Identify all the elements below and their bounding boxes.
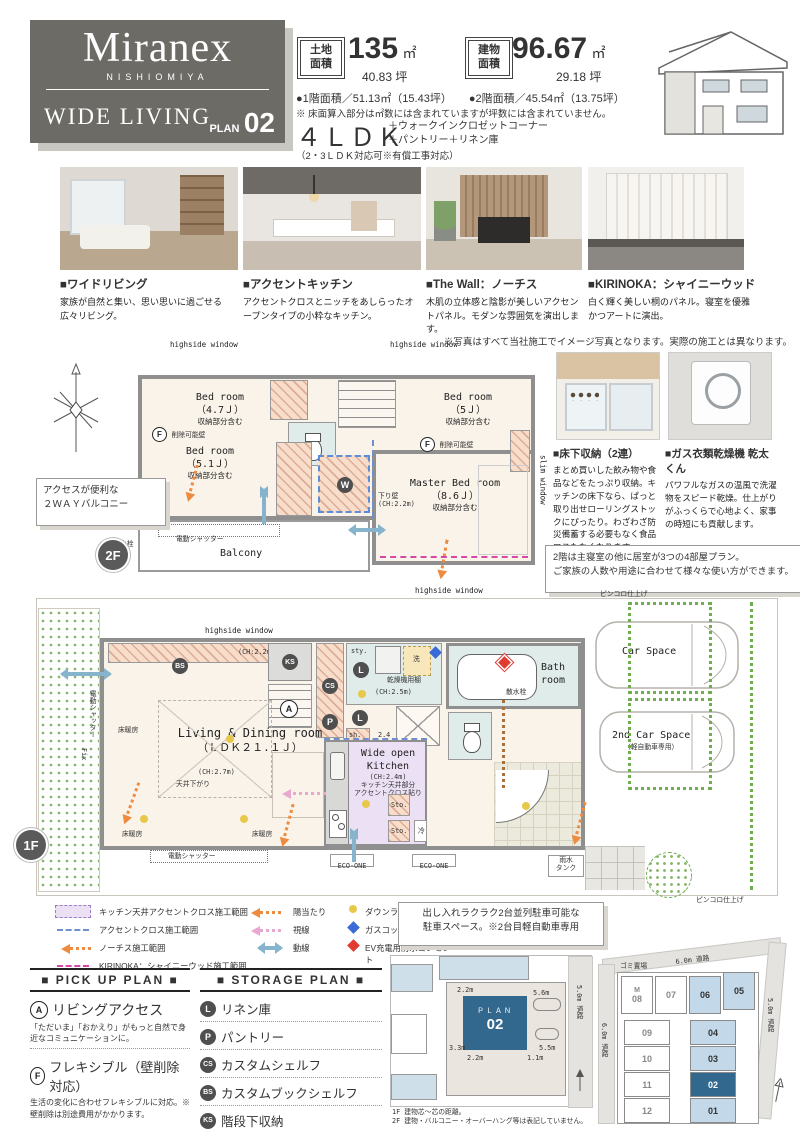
photo5-bottles: [569, 391, 599, 401]
lot-11: 11: [624, 1072, 670, 1097]
lot-map: 6.0m 道路 6.0m 道路 5.0m 道路 ゴミ置場 M 08 07 06 …: [598, 928, 798, 1128]
photo3-plant: [434, 201, 456, 241]
bedroom2-note: 収納部分含む: [408, 417, 528, 426]
bedroom2-label: Bed room （5Ｊ） 収納部分含む: [408, 392, 528, 426]
kirinoka-finish-line: [380, 556, 528, 558]
logo-divider: [46, 89, 269, 90]
storage-l-name: リネン庫: [221, 999, 271, 1018]
feature-2: ■ガス衣類乾燥機 乾太くん パワフルなガスの温風で洗濯物をスピード乾燥。仕上がり…: [665, 446, 777, 531]
master-bed-icon: [478, 465, 528, 555]
eco-one-2: ECO-ONE: [412, 854, 456, 867]
storage-l-badge: L: [200, 1001, 216, 1017]
stairs-2f: [338, 380, 396, 428]
land-area-value: 135 ㎡: [348, 32, 417, 66]
bedroom3-name: Bed room: [150, 446, 270, 459]
lotmap-road-top-label: 6.0m 道路: [675, 954, 710, 966]
bedroom1-label: Bed room （4.7Ｊ） 収納部分含む: [160, 392, 280, 426]
sight-arrow-1f: [286, 792, 326, 795]
flow-arrow-2f-2: [350, 528, 384, 532]
lot-02: 02: [690, 1072, 736, 1097]
floor1-area: ●1階面積／51.13㎡（15.43坪）: [296, 93, 452, 105]
site-note-2: 2F 建物・バルコニー・オーバーハング等は表記していません。: [392, 1117, 587, 1125]
storage-bs-badge: BS: [200, 1085, 216, 1101]
photo3-tv: [478, 217, 530, 243]
lotmap-road-right-label: 5.0m 道路: [766, 998, 774, 1032]
legend-notis-swatch: [65, 947, 91, 950]
storage-ks-name: 階段下収納: [221, 1111, 284, 1130]
lot-08-m: M: [634, 987, 640, 994]
sty-label: sty.: [351, 647, 367, 655]
layout-plus1: ＋ウォークインクロゼットコーナー: [388, 120, 548, 134]
floor2-area: ●2階面積／45.54㎡（13.75坪）: [469, 93, 625, 105]
fridge-label: 冷: [418, 827, 425, 835]
porch-steps: [585, 846, 645, 890]
kitchen-l1: Wide open: [352, 748, 424, 761]
dryer-shelf-label: 乾燥機用棚: [387, 676, 421, 684]
storage-bs-name: カスタムブックシェルフ: [221, 1083, 358, 1102]
storage-item-p: P パントリー: [200, 1027, 382, 1050]
fridge-box: 冷: [414, 820, 427, 842]
pickup-title: ■ PICK UP PLAN ■: [30, 968, 190, 992]
ch27-label: (CH:2.7m): [198, 768, 235, 776]
site-plan-word: ＰＬＡＮ: [463, 1006, 527, 1016]
kitchen-ch: (CH:2.4m): [352, 773, 424, 781]
storage-plan-section: ■ STORAGE PLAN ■ L リネン庫 P パントリー CS カスタムシ…: [200, 968, 382, 1132]
legend-accent-swatch: [57, 929, 89, 931]
removable-wall-2-label: 削除可能壁: [439, 441, 473, 449]
floor-badge-1f: 1F: [16, 830, 46, 860]
lot-07-no: 07: [666, 990, 676, 1000]
lot-12-no: 12: [642, 1106, 652, 1116]
dryer-door: [705, 373, 741, 409]
lot-06-no: 06: [700, 990, 710, 1000]
bedroom3-size: （5.1Ｊ）: [150, 459, 270, 472]
under-stairs-storage: KS: [268, 643, 312, 681]
site-north-arrow-icon: [573, 1069, 587, 1093]
brand-sub: NISHIOMIYA: [30, 72, 285, 82]
shutter-label-left: 電動シャッター: [88, 690, 96, 738]
toilet-room-1f: [448, 712, 492, 760]
site-plan: ＰＬＡＮ 02 2.2m 3.3m 2.2m 1.1m 5.6m 5.5m 5.…: [390, 955, 592, 1107]
caption-1: ■ワイドリビング 家族が自然と集い、思い思いに過ごせる広々リビング。: [60, 276, 238, 323]
building-value: 96.67: [512, 32, 587, 65]
pinkoro-top-label: ピンコロ仕上げ: [600, 590, 648, 598]
pickup-f-name: フレキシブル（壁削除対応）: [49, 1057, 190, 1095]
flyer-page: Miranex NISHIOMIYA WIDE LIVING PLAN 02 土…: [0, 0, 800, 1132]
feature-1-desc: まとめ買いした飲み物や食品などをたっぷり収納。キッチンの床下なら、ぱっと取り出せ…: [553, 464, 661, 554]
land-value: 135: [348, 32, 398, 65]
hanging-wall-l2: (CH:2.2m): [378, 500, 415, 508]
removable-wall-1: F 削除可能壁: [152, 424, 205, 442]
vanity-icon: [375, 646, 401, 674]
feature-1: ■床下収納（2連） まとめ買いした飲み物や食品などをたっぷり収納。キッチンの床下…: [553, 446, 661, 554]
building-unit: ㎡: [592, 45, 606, 61]
bedroom3-label: Bed room （5.1Ｊ） 収納部分含む: [150, 446, 270, 480]
washer-label: 洗: [413, 655, 420, 663]
downlight-1: [226, 735, 234, 743]
photo5-box2: [609, 383, 653, 431]
wic-2f: W: [318, 455, 370, 513]
brand-logo: Miranex NISHIOMIYA WIDE LIVING PLAN 02: [30, 20, 285, 143]
plan2f-note-l1: 2階は主寝室の他に居室が3つの4部屋プラン。: [553, 551, 800, 565]
wic-badge: W: [337, 477, 353, 493]
fence-dotted-line: [502, 700, 505, 788]
lot-09-no: 09: [642, 1028, 652, 1038]
caption-4: ■KIRINOKA：シャイニーウッド 白く輝く美しい桐のパネル。寝室を優雅かつア…: [588, 276, 758, 323]
lot-10-no: 10: [642, 1054, 652, 1064]
legend-kitchen-swatch: [55, 905, 91, 918]
site-dim-55: 5.5m: [539, 1044, 555, 1052]
site-dim-56: 5.6m: [533, 989, 549, 997]
pickup-item-f: F フレキシブル（壁削除対応）: [30, 1057, 190, 1095]
plan-word: PLAN: [209, 123, 239, 135]
pickup-plan-section: ■ PICK UP PLAN ■ A リビングアクセス 「ただいま」「おかえり」…: [30, 968, 190, 1120]
photo-note: ※写真はすべて当社施工でイメージ写真となります。実際の施工とは異なります。: [444, 334, 792, 348]
site-plan02-block: ＰＬＡＮ 02: [463, 996, 527, 1050]
parking-note-l1: 出し入れラクラク2台並列駐車可能な: [405, 907, 597, 921]
site-car2-icon: [535, 1028, 559, 1040]
photo4-bed-edge: [588, 239, 744, 247]
pickup-f-desc: 生活の変化に合わせフレキシブルに対応。※壁削除は別途費用がかかります。: [30, 1097, 190, 1119]
eco-one-1-label: ECO-ONE: [338, 862, 367, 870]
legend-flow-label: 動線: [293, 942, 310, 954]
plan-label: PLAN 02: [209, 107, 275, 139]
storage-cs-name: カスタムシェルフ: [221, 1055, 321, 1074]
floor-areas: ●1階面積／51.13㎡（15.43坪） ●2階面積／45.54㎡（13.75坪…: [296, 90, 625, 106]
rain-tank-l1: 雨水: [549, 856, 583, 864]
land-unit: ㎡: [403, 45, 417, 61]
floor-badge-2f: 2F: [98, 540, 128, 570]
ch25-label: (CH:2.5m): [375, 688, 412, 696]
legend-downlight-swatch: [349, 905, 357, 913]
caption-2-desc: アクセントクロスとニッチをあしらったオープンタイプの小粋なキッチン。: [243, 296, 421, 323]
caption-2: ■アクセントキッチン アクセントクロスとニッチをあしらったオープンタイプの小粋な…: [243, 276, 421, 323]
bedroom2-name: Bed room: [408, 392, 528, 405]
pinkoro-bottom-label: ピンコロ仕上げ: [696, 896, 744, 904]
lot-06: 06: [689, 976, 721, 1014]
land-tsubo: 40.83 坪: [362, 68, 407, 85]
site-neighbor-1: [391, 964, 433, 992]
caption-3: ■The Wall：ノーチス 木肌の立体感と陰影が美しいアクセントパネル。モダン…: [426, 276, 582, 337]
downlight-3: [240, 815, 248, 823]
linen-badge-1: L: [353, 662, 369, 678]
toilet-tank-icon: [305, 433, 321, 442]
lot-05-no: 05: [734, 986, 744, 996]
building-area-label: 建物面積: [468, 40, 510, 76]
balcony-note-l1: アクセスが便利な: [43, 484, 159, 498]
hanging-wall-l1: 下り壁: [378, 492, 415, 500]
site-neighbor-3: [391, 1074, 437, 1100]
floor-heat-1: 床暖房: [118, 726, 138, 734]
floor-heat-2: 床暖房: [122, 830, 142, 838]
pinkoro-frame-1: [628, 602, 712, 694]
caption-4-title: ■KIRINOKA：シャイニーウッド: [588, 276, 758, 292]
storage-cs-badge: CS: [200, 1057, 216, 1073]
site-plan-no: 02: [463, 1016, 527, 1033]
lot-05: 05: [723, 972, 755, 1010]
kitchen-label: Wide open Kitchen (CH:2.4m) キッチン天井部分 アクセ…: [352, 748, 424, 797]
lotmap-road-left-label: 6.0m 道路: [600, 1023, 608, 1057]
floor-heat-3: 床暖房: [252, 830, 272, 838]
kitchen-storage-2: Sto.: [388, 820, 410, 842]
shutter-label-1f: 電動シャッター: [168, 852, 216, 860]
lot-04-no: 04: [708, 1028, 718, 1038]
downlight-kitchen: [362, 800, 370, 808]
slim-window-label: slim window: [538, 455, 547, 505]
kitchen-l2: Kitchen: [352, 761, 424, 774]
site-neighbor-2: [391, 1014, 427, 1054]
rain-tank-l2: タンク: [549, 864, 583, 872]
accent-cloth-line-kitchen: [324, 738, 427, 740]
legend-accent-label: アクセントクロス施工範囲: [99, 924, 198, 936]
lot-09: 09: [624, 1020, 670, 1045]
photo2-pendant-cord: [313, 175, 315, 195]
layout-plus: ＋ウォークインクロゼットコーナー ＋パントリー＋リネン庫: [388, 120, 548, 147]
series-name: WIDE LIVING: [44, 104, 211, 130]
caption-1-desc: 家族が自然と集い、思い思いに過ごせる広々リビング。: [60, 296, 238, 323]
photo4-panel: [606, 173, 728, 241]
feature-2-title: ■ガス衣類乾燥機 乾太くん: [665, 446, 777, 476]
caption-2-title: ■アクセントキッチン: [243, 276, 421, 292]
feature-2-desc: パワフルなガスの温風で洗濯物をスピード乾燥。仕上がりがふっくらで心地よく、家事の…: [665, 479, 777, 531]
legend-notis-label: ノーチス施工範囲: [99, 942, 165, 954]
tree-icon: [646, 852, 692, 898]
caption-3-desc: 木肌の立体感と陰影が美しいアクセントパネル。モダンな雰囲気を演出します。: [426, 296, 582, 337]
hw-label-2f-bottom: highside window: [415, 586, 483, 595]
closet-2f-bed3: [276, 442, 312, 516]
gas-cock-icon: [429, 646, 442, 659]
hw-label-2f-right: highside window: [390, 340, 458, 349]
photo1-sofa: [80, 225, 150, 249]
hw-label-2f-left: highside window: [170, 340, 238, 349]
lotmap-trash-label: ゴミ置場: [620, 962, 647, 970]
hw-label-1f: highside window: [205, 626, 273, 635]
lot-10: 10: [624, 1046, 670, 1071]
lot-02-no: 02: [708, 1080, 718, 1090]
photo-the-wall: [426, 167, 582, 270]
pinkoro-frame-2: [628, 698, 712, 790]
balcony-label: Balcony: [220, 548, 262, 561]
brand-name: Miranex: [30, 24, 285, 72]
lot-08-no: 08: [632, 994, 642, 1004]
lot-08: M 08: [621, 976, 653, 1014]
accent-cloth-line-2f: [372, 440, 374, 518]
eco-one-2-label: ECO-ONE: [420, 862, 449, 870]
plan2f-note-box: 2階は主寝室の他に居室が3つの4部屋プラン。 ご家族の人数や用途に合わせて様々な…: [545, 545, 800, 593]
site-note-1: 1F 建物芯～芯の距離。: [392, 1108, 465, 1116]
lot-04: 04: [690, 1020, 736, 1045]
legend-sun-swatch: [255, 911, 281, 914]
land-area-label: 土地面積: [300, 40, 342, 76]
site-car1-icon: [533, 998, 561, 1011]
legend-sight-swatch: [255, 929, 281, 932]
legend-ev-swatch: [347, 939, 360, 952]
feature-1-title: ■床下収納（2連）: [553, 446, 661, 461]
plan-number: 02: [244, 107, 275, 138]
bedroom3-note: 収納部分含む: [150, 471, 270, 480]
storage-item-bs: BS カスタムブックシェルフ: [200, 1083, 382, 1106]
lot-01: 01: [690, 1098, 736, 1123]
storage-title: ■ STORAGE PLAN ■: [200, 968, 382, 992]
fix-label: Fix: [80, 748, 88, 760]
balcony-note-l2: ２ＷＡＹバルコニー: [43, 498, 159, 512]
bathroom-label: Bath room: [541, 662, 565, 687]
ceiling-drop-label: 天井下がり: [176, 780, 210, 788]
photo-wide-living: [60, 167, 238, 270]
lot-03: 03: [690, 1046, 736, 1071]
bedroom1-name: Bed room: [160, 392, 280, 405]
bedroom2-size: （5Ｊ）: [408, 405, 528, 418]
site-dim-11: 1.1m: [527, 1054, 543, 1062]
garden-strip: [38, 608, 100, 892]
bath-l1: Bath: [541, 662, 565, 675]
lot-03-no: 03: [708, 1054, 718, 1064]
rain-tank: 雨水 タンク: [548, 855, 584, 877]
balcony-note-box: アクセスが便利な ２ＷＡＹバルコニー: [36, 478, 166, 526]
flow-arrow-2f-1: [262, 490, 266, 524]
caption-4-desc: 白く輝く美しい桐のパネル。寝室を優雅かつアートに演出。: [588, 296, 758, 323]
legend-kitchen-label: キッチン天井アクセントクロス施工範囲: [99, 906, 248, 918]
compass-icon: [46, 360, 106, 460]
toilet-tank-1f-icon: [464, 723, 480, 732]
legend-sight-label: 視線: [293, 924, 310, 936]
photo-kirinoka: [588, 167, 744, 270]
storage-item-l: L リネン庫: [200, 999, 382, 1022]
storage-p-name: パントリー: [221, 1027, 284, 1046]
sprinkler-label: 散水栓: [506, 688, 526, 696]
caption-3-title: ■The Wall：ノーチス: [426, 276, 582, 292]
stove-burner-1: [332, 814, 339, 821]
removable-wall-1-label: 削除可能壁: [171, 431, 205, 439]
site-dim-33: 3.3m: [449, 1044, 465, 1052]
legend-flow-swatch: [259, 946, 281, 950]
building-tsubo: 29.18 坪: [556, 68, 601, 85]
caption-1-title: ■ワイドリビング: [60, 276, 238, 292]
sto-label-2: Sto.: [391, 827, 407, 835]
f-badge-1: F: [152, 427, 167, 442]
photo2-pendant-lamp: [309, 194, 319, 202]
flow-arrow-1f-2: [352, 832, 356, 862]
lot-07: 07: [655, 976, 687, 1014]
lot-12: 12: [624, 1098, 670, 1123]
legend-sun-label: 陽当たり: [293, 906, 326, 918]
bs-badge: BS: [172, 658, 188, 674]
pickup-a-name: リビングアクセス: [52, 1000, 163, 1020]
washer-box: 洗: [403, 646, 431, 676]
bedroom1-size: （4.7Ｊ）: [160, 405, 280, 418]
site-dim-22b: 2.2m: [467, 1054, 483, 1062]
pickup-item-a: A リビングアクセス: [30, 1000, 190, 1020]
downlight-2: [140, 815, 148, 823]
building-area-value: 96.67 ㎡: [512, 32, 606, 66]
pickup-a-badge: A: [30, 1001, 48, 1019]
storage-item-cs: CS カスタムシェルフ: [200, 1055, 382, 1078]
a-badge-plan: A: [280, 700, 298, 718]
removable-wall-2: F 削除可能壁: [420, 434, 473, 452]
lot-11-no: 11: [642, 1080, 652, 1090]
sto-label-1: Sto.: [391, 801, 407, 809]
photo1-shelf: [180, 175, 224, 235]
site-neighbor-4: [439, 956, 529, 980]
downlight-4: [358, 690, 366, 698]
site-road-right-label: 5.0m 道路: [575, 985, 583, 1019]
site-road-right: 5.0m 道路: [568, 956, 593, 1108]
storage-p-badge: P: [200, 1029, 216, 1045]
kitchen-sink-icon: [330, 752, 345, 780]
f-badge-2: F: [420, 437, 435, 452]
dining-table-icon: [272, 752, 324, 818]
parking-note-box: 出し入れラクラク2台並列駐車可能な 駐車スペース。※2台目軽自動車専用: [398, 902, 604, 946]
layout-note: （2・3ＬＤＫ対応可※有償工事対応）: [296, 148, 459, 162]
storage-item-ks: KS 階段下収納: [200, 1111, 382, 1132]
pickup-a-desc: 「ただいま」「おかえり」がもっと自然で身近なコミュニケーションに。: [30, 1022, 190, 1049]
pinkoro-edge-line: [750, 602, 753, 890]
house-illustration-icon: [645, 22, 793, 140]
bathroom-1f: Bath room: [446, 643, 581, 709]
photo-gas-dryer: [668, 352, 772, 440]
linen-badge-2: L: [352, 710, 368, 726]
photo-underfloor-storage: [556, 352, 660, 440]
photo2-person: [351, 201, 377, 231]
flow-arrow-1f-1: [62, 672, 110, 676]
parking-note-l2: 駐車スペース。※2台目軽自動車専用: [405, 921, 597, 935]
ks-badge: KS: [282, 654, 298, 670]
photo-accent-kitchen: [243, 167, 421, 270]
hanging-wall-label: 下り壁 (CH:2.2m): [378, 492, 415, 508]
bath-l2: room: [541, 675, 565, 688]
plan2f-note-l2: ご家族の人数や用途に合わせて様々な使い方ができます。: [553, 565, 800, 579]
toilet-bowl-1f-icon: [463, 731, 481, 753]
shutter-label-2f: 電動シャッター: [176, 535, 224, 543]
kitchen-storage-1: Sto.: [388, 794, 410, 816]
layout-plus2: ＋パントリー＋リネン庫: [388, 134, 548, 148]
legend-gas-swatch: [347, 921, 360, 934]
site-dim-22a: 2.2m: [457, 986, 473, 994]
legend-kirinoka-swatch: [57, 965, 89, 967]
balcony-2f: Balcony 電動シャッター: [138, 520, 370, 572]
entrance-hall: [494, 762, 581, 846]
kitchen-1f: Wide open Kitchen (CH:2.4m) キッチン天井部分 アクセ…: [324, 740, 427, 846]
storage-ks-badge: KS: [200, 1113, 216, 1129]
cs-badge: CS: [322, 678, 338, 694]
lot-01-no: 01: [708, 1106, 718, 1116]
downlight-entrance: [522, 802, 530, 810]
pickup-f-badge: F: [30, 1067, 45, 1085]
